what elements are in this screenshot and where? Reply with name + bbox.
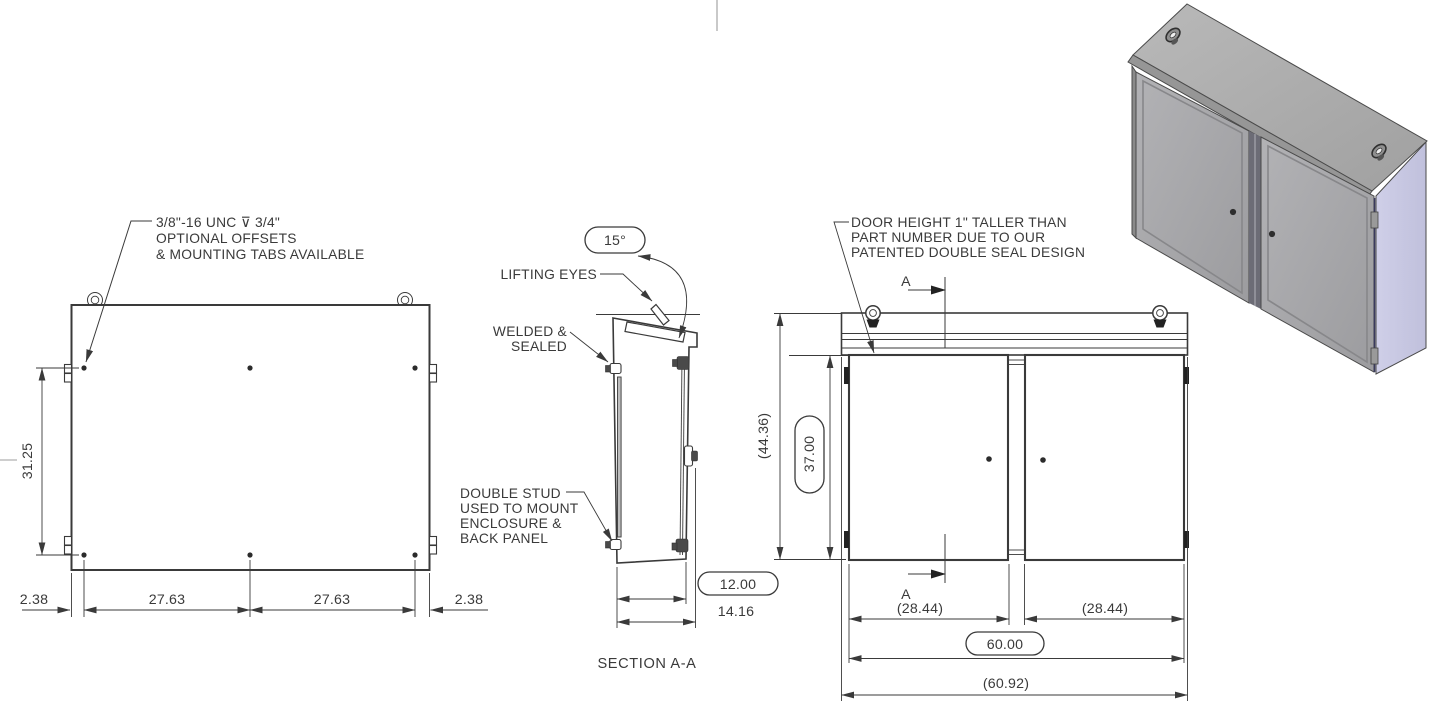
dim-angle-value: 15°	[604, 233, 626, 249]
dim-door-height-value: 37.00	[802, 436, 818, 473]
iso-right-knob	[1269, 231, 1275, 237]
iso-hinge-top	[1371, 212, 1378, 228]
lifting-eyes-leader	[600, 274, 652, 301]
double-stud-bottom	[606, 540, 622, 550]
left-door-knob	[986, 456, 992, 462]
dim-width-value: 60.00	[987, 637, 1024, 653]
technical-drawing-sheet: 3/8"-16 UNC ⊽ 3/4" OPTIONAL OFFSETS & MO…	[0, 0, 1445, 712]
door-height-note-line2: PART NUMBER DUE TO OUR	[851, 230, 1045, 245]
double-stud-top	[606, 364, 622, 374]
welded-sealed-line1: WELDED &	[493, 324, 567, 339]
front-view: DOOR HEIGHT 1" TALLER THAN PART NUMBER D…	[756, 215, 1189, 701]
dim-left-door-width: (28.44)	[897, 601, 943, 617]
dim-right-door-width: (28.44)	[1082, 601, 1128, 617]
dim-back-height: 31.25	[20, 368, 79, 555]
center-post	[1009, 360, 1024, 555]
dim-overall-height-value: (44.36)	[756, 413, 772, 459]
welded-sealed-leader	[570, 332, 608, 362]
dim-front-heights: (44.36) 37.00	[756, 314, 848, 560]
enclosure-back-panel	[72, 305, 430, 570]
double-stud-line4: BACK PANEL	[460, 531, 548, 546]
welded-sealed-line2: SEALED	[511, 339, 567, 354]
dim-back-height-value: 31.25	[20, 443, 36, 480]
door-height-note-line1: DOOR HEIGHT 1" TALLER THAN	[851, 215, 1067, 230]
drawing-canvas: 3/8"-16 UNC ⊽ 3/4" OPTIONAL OFFSETS & MO…	[0, 0, 1445, 712]
section-view: 15° LIFTING EYES WELDED & SEALED DOUBLE …	[460, 227, 778, 672]
door-height-note-line3: PATENTED DOUBLE SEAL DESIGN	[851, 245, 1085, 260]
thread-note-line3: & MOUNTING TABS AVAILABLE	[156, 247, 364, 262]
front-right-door	[1025, 355, 1184, 560]
dim-offset-right: 2.38	[455, 592, 483, 608]
double-stud-line1: DOUBLE STUD	[460, 486, 561, 501]
iso-hinge-bottom	[1371, 348, 1378, 364]
section-label: SECTION A-A	[597, 656, 696, 672]
section-outline	[613, 318, 697, 563]
double-stud-leader	[566, 492, 612, 541]
dim-span-right: 27.63	[314, 592, 351, 608]
back-panel-section	[618, 377, 622, 537]
thread-note-line1: 3/8"-16 UNC ⊽ 3/4"	[156, 215, 280, 230]
iso-left-knob	[1230, 209, 1236, 215]
section-marker-a-top: A	[901, 274, 911, 290]
dim-overall-width-value: (60.92)	[983, 676, 1029, 692]
lifting-eyes-label: LIFTING EYES	[500, 267, 597, 282]
right-door-knob	[1040, 457, 1046, 463]
double-stud-line3: ENCLOSURE &	[460, 516, 562, 531]
dim-depth-value: 12.00	[720, 577, 757, 593]
iso-left-edge	[1132, 66, 1136, 238]
double-stud-line2: USED TO MOUNT	[460, 501, 579, 516]
back-view: 3/8"-16 UNC ⊽ 3/4" OPTIONAL OFFSETS & MO…	[20, 215, 488, 617]
dim-span-left: 27.63	[149, 592, 186, 608]
thread-note-line2: OPTIONAL OFFSETS	[156, 231, 297, 246]
dim-overall-depth-value: 14.16	[718, 604, 755, 620]
dim-offset-left: 2.38	[20, 592, 48, 608]
front-left-door	[849, 355, 1008, 560]
